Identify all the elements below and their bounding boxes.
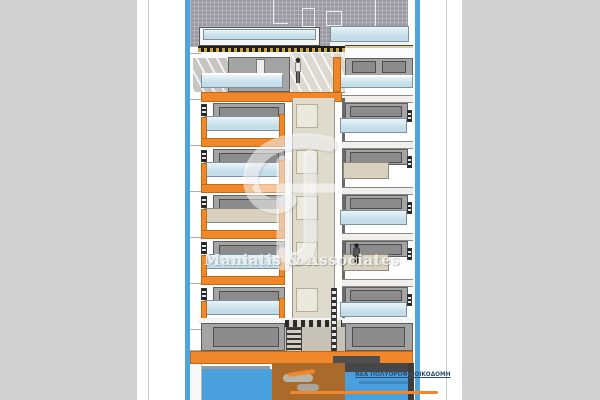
vent-grille [407,156,412,168]
glass-railing-left [201,73,283,88]
drawing-frame-left [185,0,190,400]
top-floor-wall-right [345,58,413,76]
vent-grille [407,294,412,306]
roof-glass-railing-left [203,29,316,40]
basement-wall-left [190,364,202,400]
roof-glass-railing-right [330,26,409,42]
window-glass-strip [340,302,407,317]
orange-column [333,57,341,92]
vent-grille [201,288,207,300]
elevator-door [296,288,318,312]
drawing-frame-right [415,0,420,400]
apartment-wall-right [345,103,408,119]
orange-frame-post [201,117,207,140]
window-recess [350,290,402,301]
orange-frame-post [201,163,207,186]
floor-level-line [190,99,201,100]
balcony-glass-panel [204,300,285,315]
excavation-earth [272,363,345,400]
roof-parapet-left [199,27,320,46]
apartment-wall-right [345,287,408,303]
page-border-rule-right [446,0,447,400]
floor-slab-band-right [342,279,413,287]
orange-balcony-slab [201,276,285,285]
ground-level-orange-line [290,391,438,394]
floor-level-line [190,283,201,284]
window-recess [350,198,402,209]
vent-grille [407,110,412,122]
floor-slab-band-right [342,95,413,103]
glass-railing-right [338,75,413,88]
staircase-section [286,327,302,353]
caption-subtext-line [359,381,409,384]
window-recess [352,327,405,347]
building-section-drawing: Maniatis & Associates [185,0,420,400]
ceiling-band-right [345,48,413,58]
person-upper-balcony [293,57,303,84]
watermark-text: Maniatis & Associates [195,251,409,269]
window-recess [352,61,376,73]
floor-level-line [190,53,201,54]
window-recess [350,106,402,117]
page-border-rule-left [148,0,149,400]
floor-level-line [190,145,201,146]
roof-stack-outline [302,8,315,27]
window-recess [382,61,406,73]
ground-wall-right [345,323,413,351]
window-recess [213,327,279,347]
app-background: Maniatis & Associates ΝΕΑ ΠΟΛΥΟΡΟ [0,0,600,400]
ground-wall-left [201,323,285,351]
floor-level-line [190,237,201,238]
roof-step-outline [273,0,288,24]
caption-title: ΝΕΑ ΠΟΛΥΟΡΟΦΗ ΟΙΚΟΔΟΜΗ [355,371,438,378]
floor-level-line [190,329,201,330]
roof-line-outline [375,0,376,28]
vent-grille [201,104,207,116]
apartment-wall-right [345,195,408,211]
floor-level-line [190,191,201,192]
orange-frame-post [201,209,207,232]
vent-grille [201,150,207,162]
roof-box-outline [326,11,342,26]
vent-grille [407,202,412,214]
basement-step-patch [297,384,319,391]
vent-grille [201,196,207,208]
